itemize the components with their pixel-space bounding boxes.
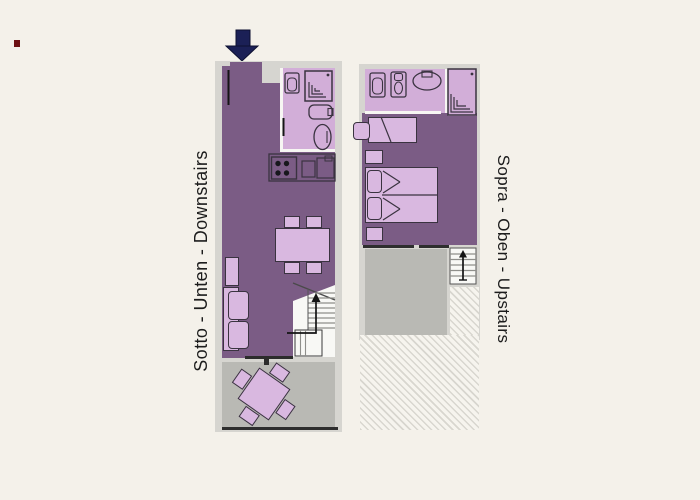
- single-bed: [368, 117, 417, 143]
- upstairs-bathroom: [365, 69, 445, 113]
- nightstand: [366, 227, 383, 241]
- red-speck: [14, 40, 20, 47]
- double-bed-pillow: [367, 170, 382, 193]
- upstairs-terrace: [365, 249, 447, 335]
- bedroom-wall-segment: [419, 245, 449, 248]
- nightstand: [365, 150, 383, 164]
- dining-chair: [306, 216, 322, 228]
- floorplan-canvas: Sotto - Unten - Downstairs Sopra - Oben …: [0, 0, 700, 500]
- dining-chair: [284, 216, 300, 228]
- bathroom-bedroom-wall: [365, 111, 441, 114]
- upstairs-staircase: [450, 248, 476, 284]
- sofa-cushion: [228, 291, 249, 320]
- double-bed-pillow: [367, 197, 382, 220]
- upstairs-plan: [359, 64, 480, 430]
- shower-cell: [448, 69, 476, 116]
- armchair: [225, 257, 239, 286]
- dining-table: [275, 228, 330, 262]
- void-hatch-bottom: [360, 335, 479, 430]
- downstairs-plan: [215, 61, 342, 432]
- downstairs-bathroom: [280, 68, 335, 152]
- dining-chair: [284, 262, 300, 274]
- bedroom-wall-segment: [363, 245, 414, 248]
- downstairs-label: Sotto - Unten - Downstairs: [191, 136, 213, 386]
- single-bed-pillow: [353, 122, 370, 140]
- dining-chair: [306, 262, 322, 274]
- void-hatch-right: [450, 287, 479, 335]
- upstairs-label: Sopra - Oben - Upstairs: [491, 149, 513, 349]
- entrance-arrow-icon: [224, 29, 262, 63]
- sofa-cushion: [228, 321, 249, 349]
